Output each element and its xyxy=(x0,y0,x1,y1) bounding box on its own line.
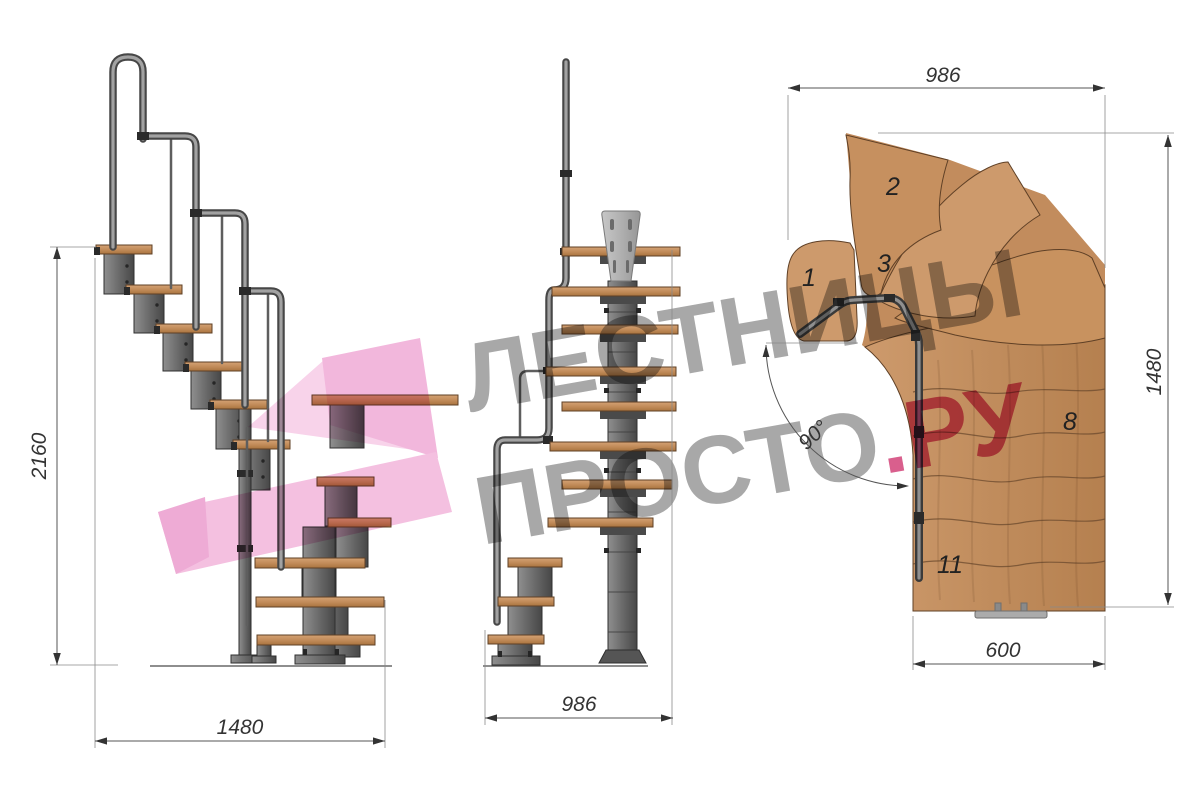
column-base-plate xyxy=(599,650,646,663)
step-label-8: 8 xyxy=(1063,408,1077,436)
dim-600-label: 600 xyxy=(985,639,1020,662)
dim-986-front-label: 986 xyxy=(561,693,596,716)
dim-986-plan-label: 986 xyxy=(925,64,960,87)
step-label-1: 1 xyxy=(802,264,816,292)
watermark: ЛЕСТНИЦЫ ПРОСТО.РУ xyxy=(158,227,1038,574)
dimension-plan-bottom: 600 xyxy=(913,616,1105,670)
dim-2160-label: 2160 xyxy=(28,432,51,480)
step-label-3: 3 xyxy=(877,250,891,278)
step-label-11: 11 xyxy=(937,551,963,579)
dimension-side-height: 2160 xyxy=(28,247,118,665)
top-mounting-plate xyxy=(602,211,640,281)
dim-1480-side-label: 1480 xyxy=(217,716,264,739)
step-label-2: 2 xyxy=(885,173,900,201)
technical-drawing: ЛЕСТНИЦЫ ПРОСТО.РУ 2160 1480 986 986 xyxy=(0,0,1200,790)
staircase-drawing-page: ЛЕСТНИЦЫ ПРОСТО.РУ 2160 1480 986 986 xyxy=(0,0,1200,790)
dim-1480-plan-label: 1480 xyxy=(1143,348,1166,395)
